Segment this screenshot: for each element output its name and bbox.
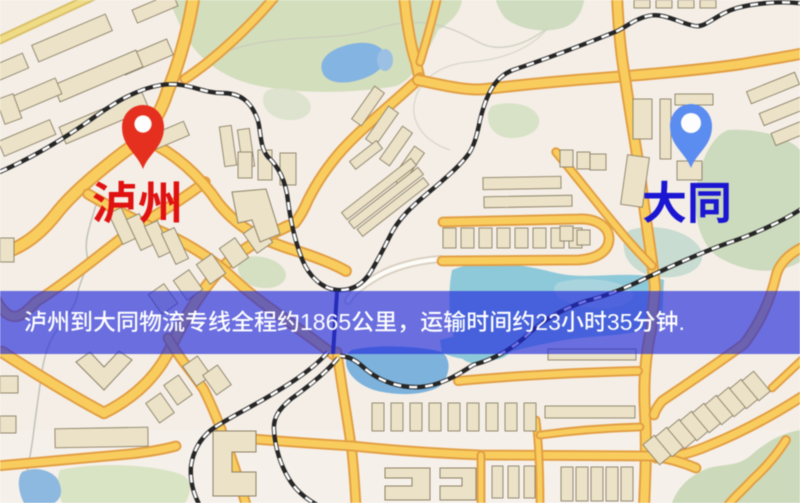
svg-text:1: 1	[300, 309, 313, 335]
svg-text:5: 5	[620, 309, 633, 335]
svg-text:6: 6	[326, 309, 339, 335]
svg-text:8: 8	[313, 309, 326, 335]
svg-text:5: 5	[338, 309, 351, 335]
svg-text:.: .	[679, 309, 685, 335]
svg-text:3: 3	[548, 309, 561, 335]
svg-text:2: 2	[535, 309, 548, 335]
svg-text:3: 3	[607, 309, 620, 335]
